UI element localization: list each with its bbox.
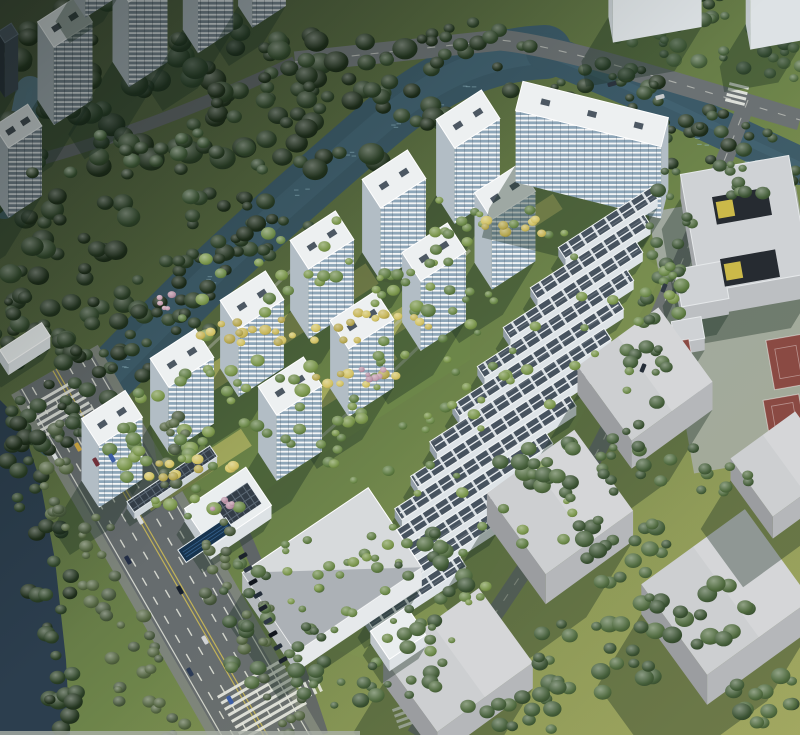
tree [197,437,207,446]
tree [691,639,704,650]
tree [301,622,312,631]
tree [738,165,746,172]
tree [377,275,384,281]
tree [371,300,380,308]
tree [390,618,397,624]
tree [444,285,456,295]
tree [206,369,215,377]
tree [378,336,389,346]
tree [517,525,529,535]
tree [415,318,425,326]
tree [309,680,319,688]
tree [589,543,607,559]
tree [646,250,658,260]
tree [664,454,678,466]
tree [387,285,400,296]
tree [322,379,333,389]
tree [263,293,276,304]
tree [251,355,265,367]
tree [401,351,410,358]
tree [498,504,509,514]
tree [521,364,534,375]
tree [706,576,725,592]
tree [672,168,681,175]
tree [557,534,570,545]
tree [666,193,674,200]
tree [163,498,178,510]
tree [196,331,206,339]
tree [406,676,417,685]
tree [207,565,218,575]
tree [665,262,676,271]
courtyard-accent [724,261,744,280]
tree [544,399,556,409]
tree [105,652,120,665]
tree [404,691,414,699]
tree [674,278,690,292]
tree [332,430,340,437]
tree [312,570,323,580]
tree [668,272,677,280]
tree [323,561,335,571]
tree [232,318,242,326]
tree [165,306,170,310]
tree [86,580,99,591]
courtyard-accent [716,199,736,218]
tree [639,567,652,578]
tree [424,413,432,420]
tree [625,367,635,375]
tree [287,598,294,604]
tree [660,362,673,373]
tree [401,278,411,286]
tree [442,586,455,597]
tree [278,317,286,323]
tree [330,627,338,634]
tree [378,310,389,319]
tree [26,167,39,178]
tree [422,426,430,433]
tree [120,471,134,483]
tree [443,258,453,267]
tree [654,345,663,353]
tree [53,505,64,515]
tree [169,418,180,427]
tree [250,661,267,675]
tree [346,319,355,326]
tree [311,324,321,332]
tree [345,258,353,265]
tree [114,686,122,693]
tree [614,572,627,583]
tree [567,509,577,518]
tree [462,237,473,247]
tree [151,497,160,504]
tree [477,425,484,431]
tree [443,229,455,239]
tree [259,307,271,318]
tree [771,668,790,684]
tree [451,368,460,375]
tree [229,501,235,506]
tree [560,230,568,237]
tree [645,222,654,229]
tree [474,330,481,336]
tree [280,434,291,443]
tree [354,337,362,344]
tree [39,462,55,475]
tree [55,420,65,428]
tree [289,332,296,338]
tree [238,643,252,655]
tree [136,609,151,622]
tree [144,631,155,640]
tree [639,340,655,353]
tree [278,720,287,728]
tree [165,460,175,468]
tree [366,376,374,382]
tree [134,142,148,154]
tree [362,553,372,561]
tree [565,442,581,456]
tree [681,212,692,221]
tree [133,446,146,457]
tree [671,307,686,320]
tree [443,356,451,363]
tree [157,301,163,306]
tree [210,507,215,512]
tree [737,600,753,614]
tree [491,718,508,732]
tree [170,146,188,161]
tree [151,390,165,402]
tree [730,679,745,691]
tree [430,245,442,255]
tree [606,433,619,444]
tree [184,513,192,520]
tree [654,475,667,486]
tree [241,384,251,393]
tree [530,321,541,331]
tree [145,664,157,674]
tree [649,396,665,409]
tree [40,482,49,490]
tree [492,455,508,469]
tree [281,541,290,549]
tree [258,674,270,684]
tree [435,197,443,204]
tree [382,540,394,550]
tree [596,452,607,461]
tree [119,144,133,156]
tree [481,223,489,230]
tree [144,472,154,481]
tree [224,365,237,376]
tree [662,627,682,644]
tree [738,186,752,198]
tree [168,291,176,298]
tree [570,253,578,260]
tree [491,698,506,711]
tree [291,677,304,688]
tree [488,362,498,371]
tree [154,698,166,708]
tree [208,462,218,471]
tree [462,296,470,302]
tree [604,643,617,654]
tree [262,429,273,438]
tree [468,409,480,419]
tree [192,128,203,137]
tree [227,461,239,471]
tree [117,457,133,470]
tree [650,184,666,198]
tree [225,662,238,673]
tree [286,714,296,723]
tree [424,646,436,657]
tree [715,631,733,646]
tree [524,205,535,214]
tree [197,137,210,148]
tree [333,445,343,453]
tree [429,529,441,539]
tree [646,623,666,640]
tree [254,259,264,267]
tree [632,441,645,452]
tree [355,413,368,424]
tree [391,372,400,380]
tree [248,326,257,334]
tree [661,540,671,549]
tree [652,369,660,376]
tree [235,330,243,337]
tree [368,688,385,702]
tree [329,459,340,468]
tree [643,315,655,325]
tree [429,227,441,238]
tree [623,387,632,394]
tree [113,696,126,707]
tree [157,295,163,300]
tree [732,703,752,720]
tree [166,713,178,723]
tree [94,130,107,141]
tree [191,484,201,493]
tree [414,490,422,497]
tree [650,237,663,248]
tree [359,367,365,372]
tree [303,536,312,544]
tree [516,538,529,549]
tree [498,371,509,381]
tree [755,187,770,200]
tree [384,681,392,688]
tree [154,142,169,155]
tree [664,290,676,300]
tree [367,532,377,540]
tree [633,420,644,430]
tree [61,524,70,532]
tree [174,376,186,386]
tree [199,253,213,265]
tree [594,685,612,700]
tree [259,325,271,335]
tree [250,420,264,432]
tree [531,216,540,224]
tree [373,384,380,390]
tree [394,313,403,320]
tree [598,469,610,479]
tree [199,588,212,599]
tree [490,297,499,304]
tree [524,703,540,717]
tree [437,658,447,667]
tree [242,610,252,619]
tree [591,622,602,631]
tree [635,670,654,686]
tree [54,458,64,467]
tree [457,577,475,592]
tree [748,688,763,701]
tree [282,567,292,576]
tree [465,599,472,605]
tree [425,283,435,291]
screenshot-root [0,0,800,735]
tree [623,356,638,369]
tree [224,334,235,344]
tree [298,606,306,613]
tree [128,642,140,652]
tree [465,288,475,296]
tree [626,645,640,657]
tree [233,379,242,387]
tree [448,637,455,643]
tree [336,380,344,386]
tree [389,524,397,531]
tree [783,698,797,710]
tree [182,189,200,204]
tree [192,454,204,464]
tree [416,537,433,552]
tree [609,444,618,451]
tree [371,562,384,573]
tree [312,374,320,381]
tree [357,677,371,689]
tree [221,547,232,557]
tree [698,463,711,474]
tree [273,338,282,346]
tree [243,588,255,598]
tree [750,716,764,728]
tree [316,440,326,449]
tree [178,455,186,462]
tree [636,458,652,472]
tree [166,429,175,436]
tree [133,388,145,398]
tree [546,724,557,734]
tree [233,561,243,570]
tree [458,549,468,557]
tree [462,383,472,391]
tree [402,571,414,581]
tree [257,165,268,175]
tree [528,458,541,469]
tree [54,435,63,443]
tree [506,721,518,731]
tree [297,687,312,700]
tree [394,562,402,569]
tree [221,386,233,397]
tree [339,336,347,343]
tree [725,462,735,471]
tree [398,422,407,430]
tree [64,167,78,179]
tree [282,548,289,554]
tree [480,582,492,592]
tree [79,540,93,552]
tree [78,522,91,533]
tree [91,514,100,522]
tree [295,403,305,412]
tree [401,538,413,548]
tree [224,526,236,536]
aerial-rendering [0,0,800,735]
tree [562,629,578,643]
tree [447,401,457,410]
tree [534,627,550,641]
tree [456,216,467,226]
tree [406,269,415,277]
tree [569,361,580,371]
tree [633,317,644,326]
tree [521,224,530,231]
tree [275,270,288,281]
tree [353,308,364,317]
tree [432,555,449,569]
tree [258,638,268,646]
tree [209,145,225,159]
tree [155,460,163,467]
tree [549,680,567,695]
tree [464,319,477,330]
tree [158,473,168,481]
tree [556,620,567,629]
tree [646,519,659,530]
tree [352,693,369,708]
tree [609,487,619,495]
tree [368,662,378,670]
tree [541,457,553,467]
tree [241,621,255,633]
tree [498,221,508,230]
tree [82,552,90,559]
tree [100,610,113,621]
tree [372,286,381,294]
tree [202,543,211,550]
tree [399,640,415,654]
tree [220,519,229,526]
tree [612,616,630,632]
tree [218,321,226,328]
tree [239,418,250,428]
tree [332,216,342,225]
tree [575,531,594,547]
tree [609,657,624,670]
tree [509,348,517,355]
tree [251,565,266,578]
tree [362,310,371,318]
tree [101,588,116,601]
